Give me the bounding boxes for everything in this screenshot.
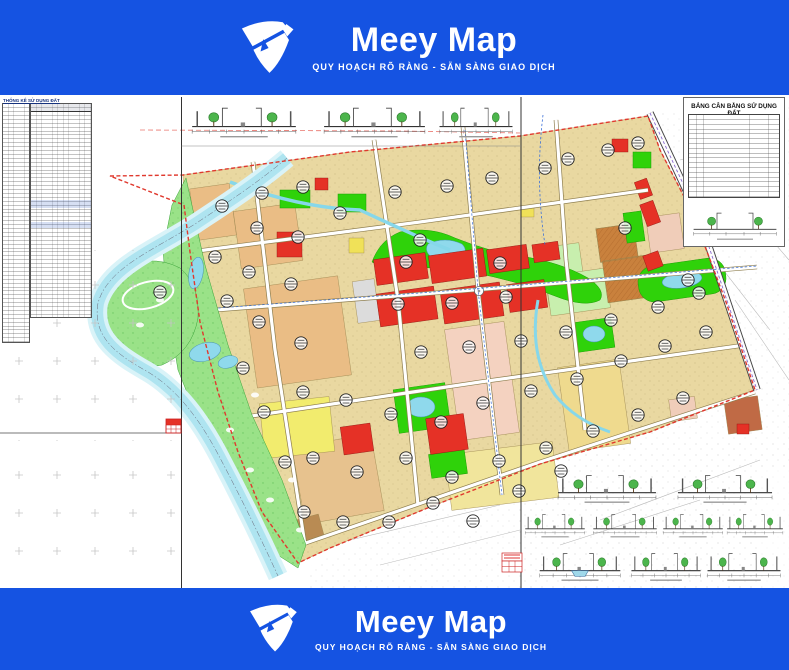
brand-tagline: QUY HOẠCH RÕ RÀNG - SẴN SÀNG GIAO DỊCH xyxy=(315,642,547,652)
brand-tagline: QUY HOẠCH RÕ RÀNG - SẴN SÀNG GIAO DỊCH xyxy=(312,62,555,72)
stats-table-title: THỐNG KÊ SỬ DỤNG ĐẤT xyxy=(3,98,60,103)
brand-name: Meey Map xyxy=(355,606,507,637)
top-banner: Meey Map QUY HOẠCH RÕ RÀNG - SẴN SÀNG GI… xyxy=(0,0,789,95)
meey-map-logo-icon xyxy=(233,16,297,80)
panel-cross-section xyxy=(690,202,780,244)
brand-name: Meey Map xyxy=(351,23,518,57)
planning-sheet: THỐNG KÊ SỬ DỤNG ĐẤT BẢNG CÂN BẰNG SỬ DỤ… xyxy=(0,95,789,588)
planning-map xyxy=(0,95,789,588)
land-balance-panel: BẢNG CÂN BẰNG SỬ DỤNG ĐẤT xyxy=(683,97,785,247)
map-layers xyxy=(0,97,789,588)
stats-table-grid-b xyxy=(30,103,92,318)
brand: Meey Map QUY HOẠCH RÕ RÀNG - SẴN SÀNG GI… xyxy=(233,16,555,80)
bottom-banner: Meey Map QUY HOẠCH RÕ RÀNG - SẴN SÀNG GI… xyxy=(0,588,789,670)
stats-table-grid-a xyxy=(2,103,30,343)
brand-footer: Meey Map QUY HOẠCH RÕ RÀNG - SẴN SÀNG GI… xyxy=(242,600,547,658)
survey-marks-bottom-left xyxy=(10,440,175,585)
meey-map-logo-icon xyxy=(242,600,300,658)
land-balance-table-grid xyxy=(688,114,780,198)
